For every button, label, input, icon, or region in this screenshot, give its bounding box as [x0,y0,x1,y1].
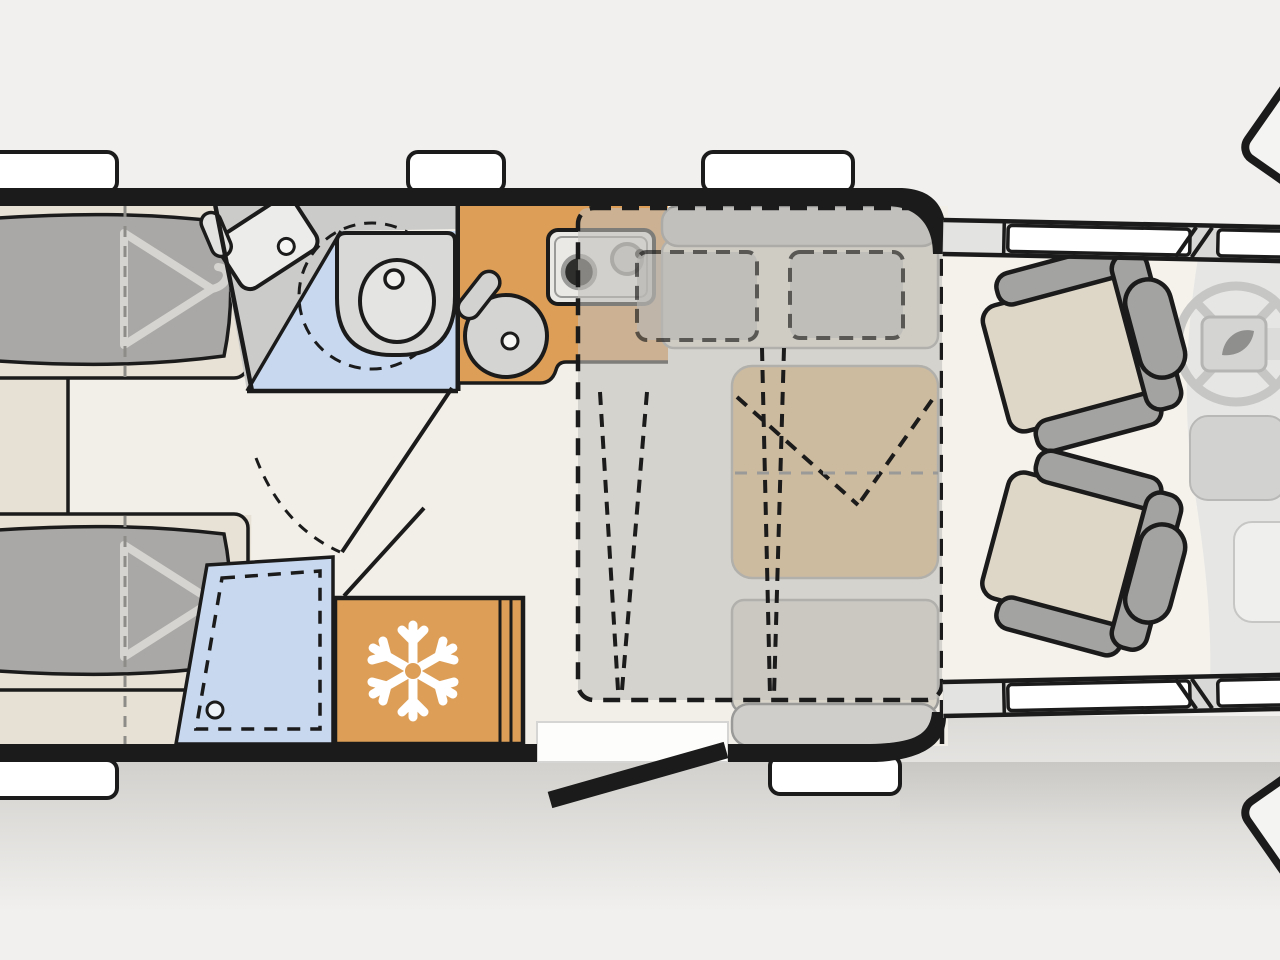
window-top-2 [408,152,504,192]
cab-window-bottom-1 [1008,681,1191,711]
pillow-left [637,252,757,340]
cab-wall-top [943,220,1280,262]
cab-window-top-2 [1218,230,1280,258]
cab-wall-end-block [944,222,1003,253]
cab-window-top-1 [1008,225,1191,255]
drop-down-bed [578,208,942,744]
rear-bench-backrest [732,704,938,746]
floor-corridor-notch [68,378,252,515]
window-top-3 [703,152,853,192]
toilet [337,233,455,355]
window-top-1 [0,152,117,192]
motorhome-floorplan [0,0,1280,960]
shower-drain [207,702,223,718]
console-lower [1234,522,1280,622]
bed-mattress [0,215,231,365]
cab-window-bottom-2 [1218,678,1280,706]
console-upper [1190,416,1280,500]
cab-wall-end-block [944,683,1003,714]
vehicle-shadow-cab [900,716,1280,826]
floorplan-canvas [0,0,1280,960]
sink-drain [502,333,518,349]
toilet-flush-button [385,270,403,288]
cab-wall-bottom [943,674,1280,716]
fridge-body [335,598,523,744]
refrigerator [335,598,523,744]
pillow-right [790,252,903,338]
window-bottom-1 [0,760,117,798]
